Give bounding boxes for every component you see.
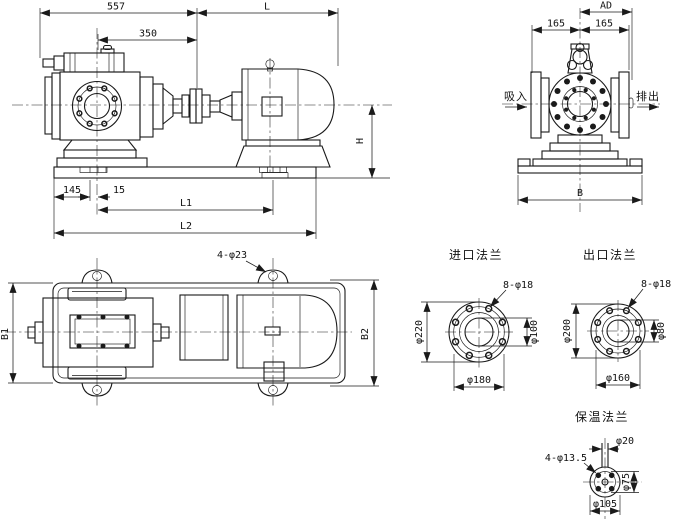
discharge-label: 排出 [636,89,660,103]
plan-motor [237,295,337,381]
dim-557: 557 [107,2,125,13]
dim-4-d23: 4-φ23 [217,250,247,261]
discharge-flange [619,72,629,138]
plan-coupling-guard [180,295,228,360]
dim-AD: AD [600,1,612,12]
pump-technical-drawing: 557 L 350 H 145 15 L1 L2 [0,0,677,523]
coupling [182,89,242,123]
insulation-flange-detail: 保温法兰 φ20 4-φ13.5 φ75 φ105 [545,410,642,519]
dim-H: H [355,138,366,144]
inlet-bolt-note: 8-φ18 [503,280,533,291]
plan-dimensions: 4-φ23 B1 B2 [0,250,379,386]
insulation-flange-title: 保温法兰 [575,410,629,424]
pump-casing-end [531,72,633,138]
motor [242,60,334,140]
pump-outline-drawing-sheet: 557 L 350 H 145 15 L1 L2 [0,0,677,523]
dim-L: L [264,2,270,13]
motor-body [242,69,334,140]
inlet-flange-title: 进口法兰 [449,248,503,262]
dim-insulation-inner: φ75 [621,473,632,491]
plan-pump [28,288,169,379]
dim-B2: B2 [360,328,371,340]
dim-15: 15 [113,185,125,196]
dim-inlet-bolt-circle: φ180 [467,375,491,386]
insulation-bolt-note: 4-φ13.5 [545,453,587,464]
plan-view: 4-φ23 B1 B2 [0,250,379,408]
outlet-bolt-note: 8-φ18 [641,279,671,290]
inlet-flange-detail: 进口法兰 8-φ18 φ220 φ100 φ180 [414,248,540,391]
dim-L1: L1 [180,198,192,209]
dim-insulation-bolt-circle: φ105 [593,499,617,510]
dim-L2: L2 [180,221,192,232]
dim-145: 145 [63,185,81,196]
inlet-flange-dimensions: 8-φ18 φ220 φ100 φ180 [414,280,540,391]
dim-B1: B1 [0,328,11,340]
dim-outlet-bore: φ80 [656,322,667,340]
side-view: 557 L 350 H 145 15 L1 L2 [12,2,392,240]
dim-outlet-outer: φ200 [562,319,573,343]
suction-flange [531,72,541,138]
motor-junction-box [262,97,282,116]
dim-B: B [577,188,583,199]
suction-label: 吸入 [504,90,528,103]
outlet-flange-title: 出口法兰 [583,248,637,262]
dim-350: 350 [139,29,157,40]
dim-insulation-pipe: φ20 [616,436,634,447]
end-view: AD 165 165 吸入 排出 B [502,1,660,213]
outlet-flange-detail: 出口法兰 8-φ18 φ200 φ80 φ160 [562,248,671,389]
dim-outlet-bolt-circle: φ160 [606,373,630,384]
outlet-flange-dimensions: 8-φ18 φ200 φ80 φ160 [562,279,671,389]
dim-inlet-bore: φ100 [529,320,540,344]
dim-165-right: 165 [595,19,613,30]
dim-inlet-outer: φ220 [414,320,425,344]
pump-head [43,46,182,141]
plan-housing-bolts [77,315,130,349]
end-view-dimensions: AD 165 165 吸入 排出 B [504,1,660,206]
dim-165-left: 165 [547,19,565,30]
side-view-dimensions: 557 L 350 H 145 15 L1 L2 [40,2,390,240]
pedestals-and-base [54,140,330,178]
